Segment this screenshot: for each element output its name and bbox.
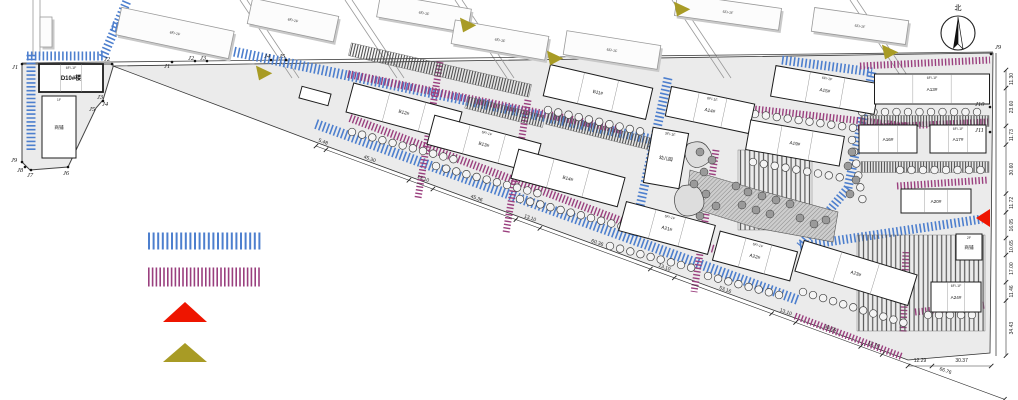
legend-olive-entrance-arrow-swatch — [163, 343, 207, 362]
tree-icon — [839, 301, 847, 309]
survey-point-dot — [30, 169, 33, 172]
tree-icon — [687, 264, 695, 272]
site-plan-canvas: 6F/-1F6F/-1F6F/-1F6F/-1F6F/-1F6F/-1F6F/-… — [0, 0, 1018, 400]
tree-icon — [554, 109, 562, 117]
tree-icon — [927, 108, 935, 116]
tree-icon — [809, 291, 817, 299]
tree-icon — [419, 147, 427, 155]
survey-point-label: J4 — [264, 53, 271, 60]
building-label: D10#楼 — [61, 74, 81, 82]
tree-icon — [838, 122, 846, 130]
legend — [148, 241, 261, 362]
tree-icon — [399, 142, 407, 150]
survey-point-dot — [171, 61, 174, 64]
shrub-icon — [810, 220, 818, 228]
survey-point-label: J3 — [200, 55, 207, 62]
dimension-label: 10.65 — [1009, 240, 1015, 253]
tree-icon — [775, 291, 783, 299]
shrub-icon — [696, 148, 704, 156]
tree-icon — [547, 203, 555, 211]
tree-icon — [606, 242, 614, 250]
tree-icon — [389, 139, 397, 147]
shrub-icon — [772, 196, 780, 204]
survey-point-label: J4 — [102, 101, 109, 108]
tree-icon — [965, 166, 973, 174]
tree-icon — [852, 160, 860, 168]
shrub-icon — [700, 168, 708, 176]
dimension-label: 12.29 — [914, 358, 927, 364]
green-blob — [674, 185, 704, 216]
north-label: 北 — [955, 4, 962, 12]
tree-icon — [503, 181, 511, 189]
dimension-label: 30.37 — [955, 358, 968, 364]
shrub-icon — [846, 190, 854, 198]
tree-icon — [962, 108, 970, 116]
tree-icon — [880, 313, 888, 321]
survey-point-dot — [21, 63, 24, 66]
building-商铺: 商铺2F — [956, 234, 982, 260]
shrub-icon — [708, 156, 716, 164]
shrub-icon — [752, 206, 760, 214]
tree-icon — [348, 128, 356, 136]
tree-icon — [493, 179, 501, 187]
building-A20: A20# — [901, 189, 971, 213]
tree-icon — [893, 108, 901, 116]
survey-point-label: J8 — [17, 167, 24, 174]
tree-icon — [647, 253, 655, 261]
tree-icon — [795, 116, 803, 124]
shrub-icon — [702, 190, 710, 198]
survey-point-dot — [67, 166, 70, 169]
shrub-icon — [844, 162, 852, 170]
tree-icon — [881, 108, 889, 116]
shrub-icon — [796, 214, 804, 222]
survey-point-dot — [989, 131, 992, 134]
survey-point-dot — [21, 161, 24, 164]
tree-icon — [704, 272, 712, 280]
survey-point-label: J3 — [97, 94, 104, 101]
north-needle-light — [958, 17, 963, 49]
tree-icon — [817, 119, 825, 127]
tree-icon — [567, 209, 575, 217]
north-needle-dark — [953, 17, 958, 49]
tree-icon — [636, 128, 644, 136]
tree-icon — [565, 111, 573, 119]
tree-icon — [829, 297, 837, 305]
tree-icon — [825, 172, 833, 180]
tree-icon — [859, 195, 867, 203]
tree-icon — [760, 160, 768, 168]
tree-icon — [782, 164, 790, 172]
tree-icon — [765, 289, 773, 297]
shrub-icon — [696, 212, 704, 220]
tree-icon — [799, 288, 807, 296]
context-building: 6F/-1F — [115, 7, 236, 61]
dimension-label: 16.05 — [1009, 219, 1015, 232]
context-building: 6F/-1F — [811, 8, 911, 48]
building-label: A16# — [883, 137, 894, 142]
tree-icon — [806, 118, 814, 126]
survey-point-label: J10 — [975, 101, 985, 108]
tree-icon — [369, 134, 377, 142]
tree-icon — [616, 245, 624, 253]
survey-point-label: J2 — [104, 56, 111, 63]
tree-icon — [453, 168, 461, 176]
dimension-label: 11.46 — [1009, 285, 1015, 297]
tree-icon — [677, 261, 685, 269]
tree-icon — [870, 310, 878, 318]
shrub-icon — [758, 192, 766, 200]
building-floors-label: 6F/-1F — [927, 76, 938, 80]
tree-icon — [793, 166, 801, 174]
shrub-icon — [786, 200, 794, 208]
survey-point-label: J1 — [164, 63, 170, 70]
tree-icon — [931, 166, 939, 174]
tree-icon — [848, 136, 856, 144]
survey-point-label: J9 — [11, 157, 18, 164]
tree-icon — [463, 170, 471, 178]
building-商铺: 商铺1F — [42, 96, 76, 158]
tree-icon — [537, 201, 545, 209]
building-label: A20# — [931, 199, 942, 204]
tree-icon — [857, 184, 865, 192]
tree-icon — [432, 162, 440, 170]
dimension-label: 11.72 — [1009, 197, 1015, 209]
tree-icon — [597, 217, 605, 225]
tree-icon — [577, 212, 585, 220]
tree-icon — [725, 278, 733, 286]
dimension-label: 11.73 — [1009, 129, 1015, 141]
tree-icon — [745, 283, 753, 291]
tree-icon — [526, 198, 534, 206]
tree-icon — [890, 316, 898, 324]
tree-icon — [849, 304, 857, 312]
shrub-icon — [822, 216, 830, 224]
tree-icon — [771, 162, 779, 170]
dimension-label: 66.76 — [938, 366, 952, 376]
tree-icon — [637, 250, 645, 258]
tree-icon — [575, 113, 583, 121]
tree-icon — [442, 165, 450, 173]
tree-icon — [803, 168, 811, 176]
tree-icon — [896, 166, 904, 174]
tree-icon — [450, 155, 458, 163]
shrub-icon — [848, 148, 856, 156]
building-label: 商铺 — [54, 124, 64, 131]
tree-icon — [755, 286, 763, 294]
tree-icon — [627, 248, 635, 256]
tree-icon — [606, 120, 614, 128]
tree-icon — [916, 108, 924, 116]
shrub-icon — [744, 188, 752, 196]
dimension-label: 11.30 — [1009, 73, 1015, 85]
shrub-icon — [766, 210, 774, 218]
tree-icon — [919, 166, 927, 174]
tree-icon — [440, 153, 448, 161]
tree-icon — [516, 195, 524, 203]
building-label: A17# — [953, 137, 964, 142]
tree-icon — [836, 174, 844, 182]
tree-icon — [714, 275, 722, 283]
tree-icon — [379, 136, 387, 144]
context-building — [40, 17, 55, 50]
tree-icon — [828, 121, 836, 129]
dimension-label: 34.43 — [1009, 322, 1015, 335]
tree-icon — [626, 125, 634, 133]
tree-icon — [544, 106, 552, 114]
survey-point-dot — [990, 53, 993, 56]
tree-icon — [587, 214, 595, 222]
building-floors-label: 6F/-1F — [951, 284, 962, 288]
dimension-label: 17.00 — [1009, 262, 1015, 275]
survey-point-dot — [24, 166, 27, 169]
tree-icon — [473, 173, 481, 181]
site-plan-page: 6F/-1F6F/-1F6F/-1F6F/-1F6F/-1F6F/-1F6F/-… — [0, 0, 1018, 400]
building-label: 商铺 — [964, 244, 974, 251]
survey-point-label: J1 — [12, 64, 18, 71]
legend-red-entrance-arrow-swatch — [163, 302, 207, 322]
tree-icon — [513, 184, 521, 192]
tree-icon — [735, 280, 743, 288]
tree-icon — [773, 113, 781, 121]
survey-point-label: J6 — [63, 170, 70, 177]
tree-icon — [608, 220, 616, 228]
shrub-icon — [690, 180, 698, 188]
shrub-icon — [712, 202, 720, 210]
building-A24: A24#6F/-1F — [931, 282, 981, 312]
tree-icon — [483, 176, 491, 184]
survey-point-dot — [989, 106, 992, 109]
context-building: 6F/-1F — [247, 0, 341, 45]
tree-icon — [942, 166, 950, 174]
building-label: A24# — [951, 295, 962, 300]
shrub-icon — [732, 182, 740, 190]
tree-icon — [849, 124, 857, 132]
tree-icon — [819, 294, 827, 302]
survey-point-label: J7 — [27, 172, 34, 179]
tree-icon — [939, 108, 947, 116]
tree-icon — [429, 150, 437, 158]
building-A13: A13#6F/-1F — [875, 74, 990, 104]
dimension-label: 23.60 — [1009, 101, 1015, 114]
building-floors-label: 6F/-1F — [66, 66, 77, 70]
tree-icon — [784, 115, 792, 123]
tree-icon — [409, 145, 417, 153]
dimension-label: 30.60 — [1009, 163, 1015, 176]
tree-icon — [595, 118, 603, 126]
tree-icon — [358, 131, 366, 139]
tree-icon — [954, 166, 962, 174]
north-arrow: 北 — [941, 4, 975, 50]
survey-point-dot — [111, 63, 114, 66]
building-label: A13# — [927, 87, 938, 92]
survey-point-label: J5 — [279, 53, 286, 60]
tree-icon — [908, 166, 916, 174]
building-A16: A16# — [859, 125, 917, 153]
survey-point-label: J2 — [188, 55, 195, 62]
legend-olive-entrance-arrow — [163, 343, 207, 362]
survey-point-label: J11 — [975, 127, 984, 134]
tree-icon — [557, 206, 565, 214]
shrub-icon — [852, 176, 860, 184]
tree-icon — [973, 108, 981, 116]
tree-icon — [616, 123, 624, 131]
survey-point-label: J5 — [89, 106, 96, 113]
tree-icon — [524, 187, 532, 195]
tree-icon — [534, 189, 542, 197]
tree-icon — [977, 166, 985, 174]
tree-icon — [749, 158, 757, 166]
tree-icon — [900, 319, 908, 327]
building-D10楼: D10#楼6F/-1F — [39, 64, 103, 92]
building-floors-label: 6F/-1F — [953, 127, 964, 131]
tree-icon — [904, 108, 912, 116]
legend-red-entrance-arrow — [163, 302, 207, 322]
survey-point-label: J9 — [995, 44, 1002, 51]
shrub-icon — [738, 201, 746, 209]
tree-icon — [814, 170, 822, 178]
tree-icon — [950, 108, 958, 116]
tree-icon — [859, 307, 867, 315]
tree-icon — [585, 116, 593, 124]
tree-icon — [762, 112, 770, 120]
